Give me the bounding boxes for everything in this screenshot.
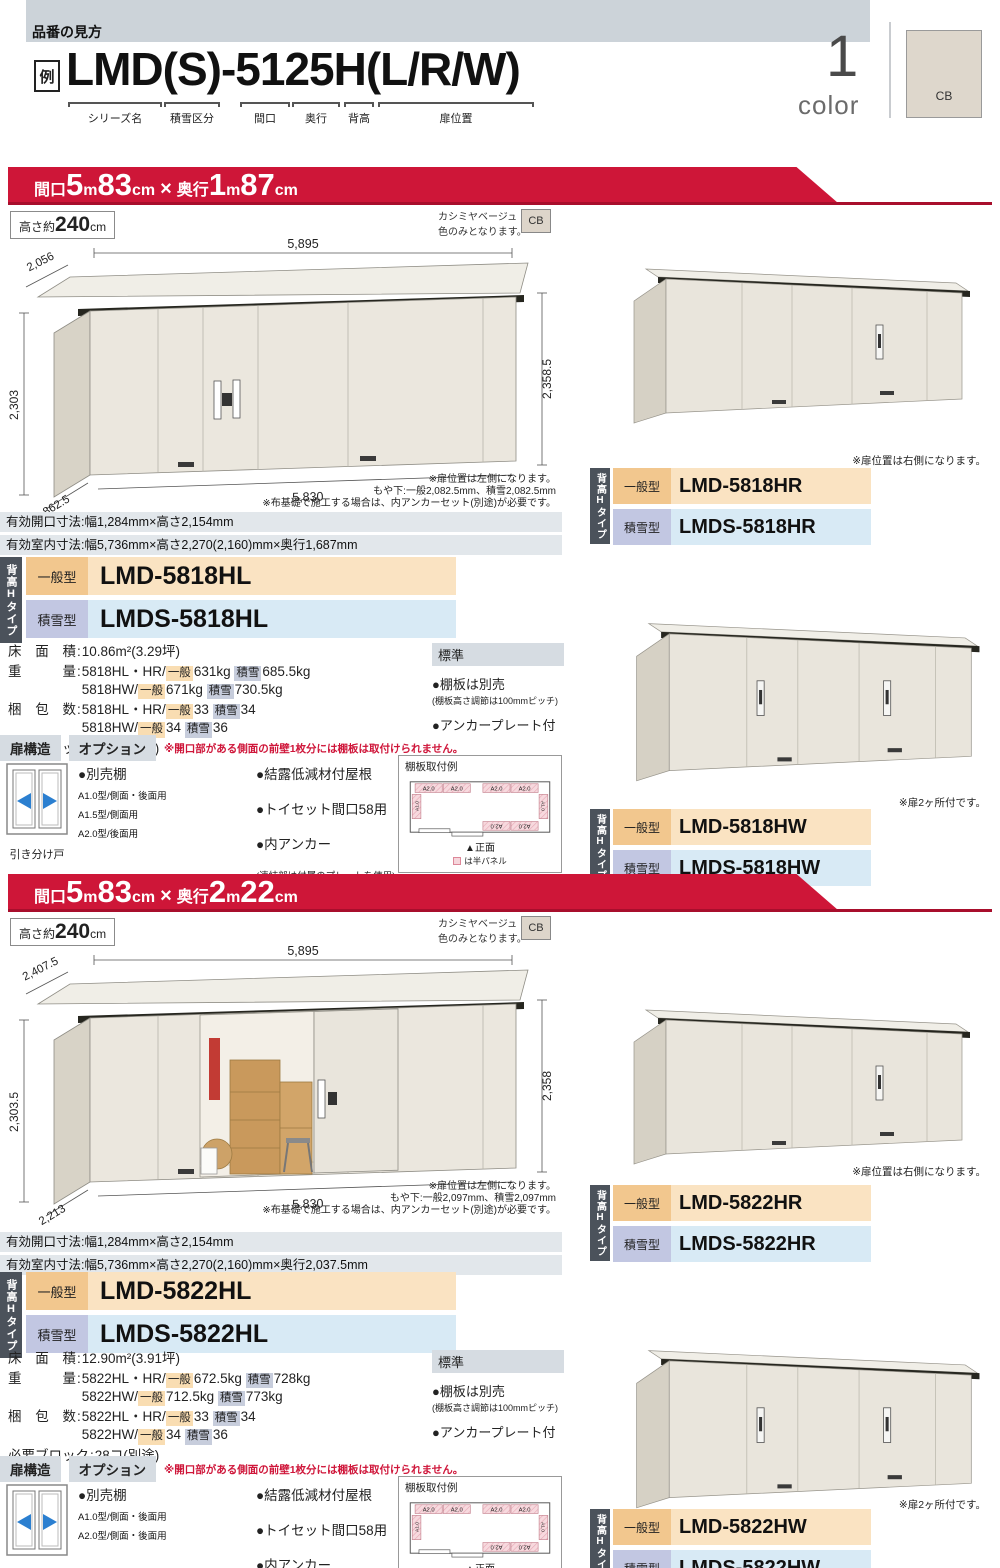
text-part: 87: [240, 167, 274, 203]
text-part: 1: [209, 167, 226, 203]
text-part: 奥行: [177, 883, 209, 907]
door-lock: [222, 393, 232, 406]
text-part: m: [83, 889, 97, 907]
dim-height-left: 2,303: [8, 390, 21, 420]
code-part-label: 扉位置: [378, 110, 534, 126]
code-part-label: シリーズ名: [68, 110, 162, 126]
list-item: ●内アンカー: [256, 833, 401, 853]
model-type-label: 積雪型: [613, 1226, 671, 1262]
shelf-front-caption: ▲正面: [405, 839, 555, 854]
option-items-column: ●結露低減材付屋根●トイセット間口58用●内アンカー (連結部は付属のプレートを…: [256, 763, 401, 882]
banner-underline: [8, 202, 992, 205]
code-part-label: 背高: [344, 110, 374, 126]
model-list: 一般型 LMD-5822HW 積雪型 LMDS-5822HW: [613, 1509, 871, 1568]
color-note-line: カシミヤベージュ: [438, 918, 527, 933]
option-shelf-list: A1.0型/側面・後面用A1.5型/側面用A2.0型/後面用: [78, 788, 238, 840]
list-item: A1.0型/側面・後面用: [78, 788, 238, 802]
opening-dimension-bar: 有効開口寸法:幅1,284mm×高さ2,154mm: [0, 512, 562, 532]
shelf-label: A1.0: [414, 1522, 420, 1532]
door-handle-left: [757, 1408, 764, 1443]
half-panel-swatch: [453, 857, 461, 865]
list-item: A1.0型/側面・後面用: [78, 1509, 238, 1523]
text-part: m: [226, 889, 240, 907]
model-row-general: 一般型 LMD-5818HL: [26, 557, 456, 595]
model-code: LMDS-5822HL: [88, 1315, 456, 1353]
text-part: cm: [90, 220, 106, 234]
text-part: m: [226, 182, 240, 200]
model-code: LMD-5822HR: [671, 1185, 871, 1221]
standard-title: 標準: [432, 1350, 564, 1373]
door-handle-right: [876, 325, 883, 359]
model-row-general: 一般型 LMD-5818HW: [613, 809, 871, 845]
model-code: LMD-5818HR: [671, 468, 871, 504]
catalog-page: 品番の見方 例 LMD(S)-5125H(L/R/W) シリーズ名 積雪区分 間…: [0, 0, 1000, 1568]
drawing-note: ※布基礎で施工する場合は、内アンカーセット(別途)が必要です。: [262, 1203, 556, 1216]
options-header: 扉構造 オプション ※開口部がある側面の前壁1枚分には棚板は取付けられません。: [0, 1456, 463, 1482]
text-part: cm: [90, 927, 106, 941]
standard-item-sub: (棚板高さ調節は100mmピッチ): [432, 1401, 564, 1414]
text-part: 22: [240, 874, 274, 910]
white-bin: [201, 1148, 217, 1174]
standard-item: ●アンカープレート付: [432, 715, 564, 734]
shelf-legend: は半パネル: [405, 855, 555, 867]
standard-box: 標準 ●棚板は別売 (棚板高さ調節は100mmピッチ) ●アンカープレート付: [432, 643, 564, 734]
code-bracket: [292, 102, 340, 107]
shelf-label: A2.0: [423, 1507, 435, 1513]
shelf-label: A1.0: [540, 1522, 546, 1532]
options-header-label: オプション: [69, 735, 157, 761]
standard-item: ●アンカープレート付: [432, 1422, 564, 1441]
shelf-label: A1.0: [540, 801, 546, 811]
list-item: ●トイセット間口58用: [256, 798, 401, 818]
options-header: 扉構造 オプション ※開口部がある側面の前壁1枚分には棚板は取付けられません。: [0, 735, 463, 761]
text-part: 高さ約: [19, 925, 55, 942]
model-type-label: 積雪型: [26, 1315, 88, 1353]
catalog-section: 間口5m83cm×奥行1m87cm 高さ約240cm カシミヤベージュ 色のみと…: [0, 165, 1000, 877]
shelf-plan-diagram: A2.0 A2.0 A2.0 A2.0 A1.0 A1.0 A2.0 A2.0: [405, 776, 555, 838]
list-item: ●内アンカー: [256, 1554, 401, 1568]
model-type-label: 一般型: [26, 1272, 88, 1310]
sliding-door-figure: 引き分け戸: [6, 1484, 68, 1568]
options-warning-note: ※開口部がある側面の前壁1枚分には棚板は取付けられません。: [164, 741, 463, 756]
model-row-snow: 積雪型 LMDS-5818HR: [613, 509, 871, 545]
model-code: LMDS-5818HL: [88, 600, 456, 638]
model-type-label: 一般型: [613, 809, 671, 845]
shed-drawing: [38, 263, 528, 497]
dim-width-top: 5,895: [287, 944, 318, 958]
options-block: 扉構造 オプション ※開口部がある側面の前壁1枚分には棚板は取付けられません。 …: [0, 1456, 572, 1568]
model-type-label: 一般型: [613, 468, 671, 504]
code-bracket: [164, 102, 220, 107]
model-row-snow: 積雪型 LMDS-5822HL: [26, 1315, 456, 1353]
shed-photo: [622, 978, 978, 1174]
shelf-label: A2.0: [451, 1507, 463, 1513]
slid-door-panel: [314, 1009, 398, 1173]
drawing-note: ※扉位置は左側になります。: [429, 472, 556, 485]
color-note-line: カシミヤベージュ: [438, 211, 527, 226]
list-item: ●結露低減材付屋根: [256, 763, 401, 783]
spec-row: 梱 包 数:5822HL・HR/一般33 積雪345822HW/一般34 積雪3…: [8, 1408, 428, 1444]
standard-title: 標準: [432, 643, 564, 666]
list-item: ●結露低減材付屋根: [256, 1484, 401, 1504]
model-type-label: 積雪型: [26, 600, 88, 638]
text-part: 奥行: [177, 176, 209, 200]
header-band: [26, 0, 870, 42]
list-item: ●トイセット間口58用: [256, 1519, 401, 1539]
text-part: 240: [55, 920, 90, 944]
product-code-example: LMD(S)-5125H(L/R/W): [66, 42, 520, 96]
shed-photo: [622, 1318, 990, 1518]
code-bracket: [378, 102, 534, 107]
shelf-label: A2.0: [423, 786, 435, 792]
option-shelf-column: ●別売棚 A1.0型/側面・後面用A1.5型/側面用A2.0型/後面用: [78, 763, 238, 840]
photo-note: ※扉2ヶ所付です。: [899, 1497, 986, 1512]
model-row-general: 一般型 LMD-5822HR: [613, 1185, 871, 1221]
model-code: LMDS-5818HR: [671, 509, 871, 545]
option-shelf-list: A1.0型/側面・後面用A2.0型/側面・後面用: [78, 1509, 238, 1542]
list-item: A2.0型/側面・後面用: [78, 1528, 238, 1542]
text-part: ×: [155, 178, 177, 201]
drawing-note: もや下:一般2,097mm、積雪2,097mm: [390, 1191, 556, 1204]
text-part: 83: [98, 874, 132, 910]
door-handle-right: [884, 1408, 891, 1443]
dimension-drawing: 5,895 2,056 2,303 2,358.5 5,830 1,862.5 …: [8, 235, 560, 527]
size-banner: 間口5m83cm×奥行1m87cm: [8, 167, 838, 203]
shelf-label: A2.0: [519, 822, 531, 828]
type-tab: 背高Hタイプ: [590, 1185, 610, 1261]
list-item: A2.0型/後面用: [78, 826, 238, 840]
option-shelf-title: ●別売棚: [78, 763, 238, 783]
spec-row: 床 面 積:12.90m²(3.91坪): [8, 1350, 428, 1368]
shelf-label: A2.0: [519, 1507, 531, 1513]
code-part-label: 間口: [240, 110, 290, 126]
text-part: 83: [98, 167, 132, 203]
dimension-drawing: 5,895 2,407.5 2,303.5 2,358 5,830 2,213 …: [8, 942, 560, 1234]
model-code: LMD-5822HW: [671, 1509, 871, 1545]
option-shelf-title: ●別売棚: [78, 1484, 238, 1504]
option-shelf-column: ●別売棚 A1.0型/側面・後面用A2.0型/側面・後面用: [78, 1484, 238, 1542]
model-row-snow: 積雪型 LMDS-5822HW: [613, 1550, 871, 1568]
shelf-label: A2.0: [491, 1507, 503, 1513]
section-5818: 間口5m83cm×奥行1m87cm 高さ約240cm カシミヤベージュ 色のみと…: [0, 165, 1000, 877]
type-tab: 背高Hタイプ: [0, 557, 22, 643]
color-swatch: CB: [906, 30, 982, 118]
door-handle: [214, 381, 221, 419]
text-part: 5: [66, 874, 83, 910]
standard-box: 標準 ●棚板は別売 (棚板高さ調節は100mmピッチ) ●アンカープレート付: [432, 1350, 564, 1441]
model-list: 一般型 LMD-5818HR 積雪型 LMDS-5818HR: [613, 468, 871, 545]
photo-note: ※扉2ヶ所付です。: [899, 795, 986, 810]
shelf-label: A1.0: [414, 801, 420, 811]
shelf-example-box: 棚板取付例: [398, 755, 562, 873]
shelf-label: A2.0: [519, 786, 531, 792]
shelf-example-title: 棚板取付例: [405, 759, 555, 774]
model-type-label: 一般型: [26, 557, 88, 595]
standard-item: ●棚板は別売: [432, 1381, 564, 1400]
shelf-front-caption: ▲正面: [405, 1560, 555, 1568]
model-code: LMD-5818HL: [88, 557, 456, 595]
open-door-interior: [200, 1009, 398, 1177]
model-row-general: 一般型 LMD-5822HL: [26, 1272, 456, 1310]
shelf-label: A2.0: [491, 1543, 503, 1549]
drawing-note: もや下:一般2,082.5mm、積雪2,082.5mm: [373, 484, 556, 497]
shelf-example-title: 棚板取付例: [405, 1480, 555, 1495]
opening-dimension-bar: 有効開口寸法:幅1,284mm×高さ2,154mm: [0, 1232, 562, 1252]
dim-height-right: 2,358: [540, 1071, 554, 1101]
standard-item: ●棚板は別売: [432, 674, 564, 693]
model-code: LMDS-5822HW: [671, 1550, 871, 1568]
text-part: 2: [209, 874, 226, 910]
model-code: LMD-5822HL: [88, 1272, 456, 1310]
door-handle: [233, 380, 240, 418]
header-title: 品番の見方: [32, 22, 102, 42]
spec-row: 床 面 積:10.86m²(3.29坪): [8, 643, 428, 661]
model-type-label: 積雪型: [613, 1550, 671, 1568]
text-part: 間口: [34, 883, 66, 907]
shelf-legend-text: は半パネル: [464, 855, 507, 867]
model-type-label: 積雪型: [613, 509, 671, 545]
shelf-label: A2.0: [491, 786, 503, 792]
cb-color-chip: CB: [521, 916, 551, 940]
shelf-example-box: 棚板取付例: [398, 1476, 562, 1568]
section-5822: 間口5m83cm×奥行2m22cm 高さ約240cm カシミヤベージュ 色のみと…: [0, 872, 1000, 1568]
text-part: 240: [55, 213, 90, 237]
step-stool: [286, 1138, 310, 1143]
model-row-snow: 積雪型 LMDS-5818HL: [26, 600, 456, 638]
shelf-label: A2.0: [519, 1543, 531, 1549]
sliding-door-icon: [6, 763, 68, 837]
model-row-general: 一般型 LMD-5818HR: [613, 468, 871, 504]
text-part: cm: [275, 182, 298, 200]
dim-depth-top: 2,056: [25, 250, 56, 274]
text-part: cm: [132, 182, 155, 200]
code-bracket: [344, 102, 374, 107]
dim-depth-bottom: 2,213: [37, 1203, 68, 1228]
size-banner: 間口5m83cm×奥行2m22cm: [8, 874, 838, 910]
spec-table: 床 面 積:12.90m²(3.91坪)重 量:5822HL・HR/一般672.…: [8, 1350, 428, 1466]
sliding-door-caption: 引き分け戸: [6, 846, 68, 862]
standard-item-sub: (棚板高さ調節は100mmピッチ): [432, 694, 564, 707]
text-part: cm: [132, 889, 155, 907]
interior-red-cabinet: [209, 1038, 220, 1100]
spec-row: 重 量:5822HL・HR/一般672.5kg 積雪728kg5822HW/一般…: [8, 1370, 428, 1406]
shelf-label: A2.0: [451, 786, 463, 792]
example-tag: 例: [34, 60, 60, 92]
banner-underline: [8, 909, 992, 912]
cardboard-boxes: [230, 1060, 280, 1174]
photo-note: ※扉位置は右側になります。: [852, 1164, 986, 1179]
door-structure-header: 扉構造: [0, 735, 61, 761]
model-row-snow: 積雪型 LMDS-5822HR: [613, 1226, 871, 1262]
model-row-general: 一般型 LMD-5822HW: [613, 1509, 871, 1545]
interior-dimension-bar: 有効室内寸法:幅5,736mm×高さ2,270(2,160)mm×奥行1,687…: [0, 535, 562, 555]
dim-height-right: 2,358.5: [540, 359, 554, 399]
shelf-label: A2.0: [491, 822, 503, 828]
option-items-list: ●結露低減材付屋根●トイセット間口58用●内アンカー: [256, 763, 401, 853]
text-part: 間口: [34, 176, 66, 200]
code-part-label: 積雪区分: [164, 110, 220, 126]
shelf-plan-diagram: A2.0 A2.0 A2.0 A2.0 A1.0 A1.0 A2.0 A2.0: [405, 1497, 555, 1559]
catalog-section: 間口5m83cm×奥行2m22cm 高さ約240cm カシミヤベージュ 色のみと…: [0, 872, 1000, 1568]
type-tab: 背高Hタイプ: [590, 468, 610, 544]
text-part: m: [83, 182, 97, 200]
model-list: 一般型 LMD-5822HL 積雪型 LMDS-5822HL: [26, 1272, 456, 1353]
drawing-note: ※布基礎で施工する場合は、内アンカーセット(別途)が必要です。: [262, 496, 556, 509]
dim-width-top: 5,895: [287, 237, 318, 251]
shed-photo: [622, 237, 978, 433]
model-type-label: 一般型: [613, 1185, 671, 1221]
code-part-label: 奥行: [292, 110, 340, 126]
color-swatch-label: CB: [907, 89, 981, 103]
sliding-door-icon: [6, 1484, 68, 1558]
options-header-label: オプション: [69, 1456, 157, 1482]
options-block: 扉構造 オプション ※開口部がある側面の前壁1枚分には棚板は取付けられません。 …: [0, 735, 572, 877]
color-count: 1: [826, 28, 858, 86]
model-type-label: 一般型: [613, 1509, 671, 1545]
code-bracket: [68, 102, 162, 107]
type-tab: 背高Hタイプ: [0, 1272, 22, 1358]
options-warning-note: ※開口部がある側面の前壁1枚分には棚板は取付けられません。: [164, 1462, 463, 1477]
dim-height-left: 2,303.5: [8, 1092, 21, 1132]
text-part: 高さ約: [19, 218, 55, 235]
text-part: cm: [275, 889, 298, 907]
model-list: 一般型 LMD-5818HL 積雪型 LMDS-5818HL: [26, 557, 456, 638]
type-tab: 背高Hタイプ: [590, 1509, 610, 1568]
model-list: 一般型 LMD-5822HR 積雪型 LMDS-5822HR: [613, 1185, 871, 1262]
door-handle-right: [876, 1066, 883, 1100]
spec-row: 重 量:5818HL・HR/一般631kg 積雪685.5kg5818HW/一般…: [8, 663, 428, 699]
cb-color-chip: CB: [521, 209, 551, 233]
door-handle-right: [884, 681, 891, 716]
drawing-note: ※扉位置は左側になります。: [429, 1179, 556, 1192]
option-items-list: ●結露低減材付屋根●トイセット間口58用●内アンカー: [256, 1484, 401, 1568]
code-bracket: [240, 102, 290, 107]
text-part: ×: [155, 885, 177, 908]
model-code: LMDS-5822HR: [671, 1226, 871, 1262]
sliding-door-figure: 引き分け戸: [6, 763, 68, 862]
photo-note: ※扉位置は右側になります。: [852, 453, 986, 468]
model-code: LMD-5818HW: [671, 809, 871, 845]
text-part: 5: [66, 167, 83, 203]
option-items-column: ●結露低減材付屋根●トイセット間口58用●内アンカー (連結部は付属のプレートを…: [256, 1484, 401, 1568]
spec-row: 梱 包 数:5818HL・HR/一般33 積雪345818HW/一般34 積雪3…: [8, 701, 428, 737]
shed-photo: [622, 591, 990, 791]
divider: [889, 22, 891, 118]
door-handle-left: [757, 681, 764, 716]
color-count-word: color: [798, 90, 859, 121]
list-item: A1.5型/側面用: [78, 807, 238, 821]
door-structure-header: 扉構造: [0, 1456, 61, 1482]
